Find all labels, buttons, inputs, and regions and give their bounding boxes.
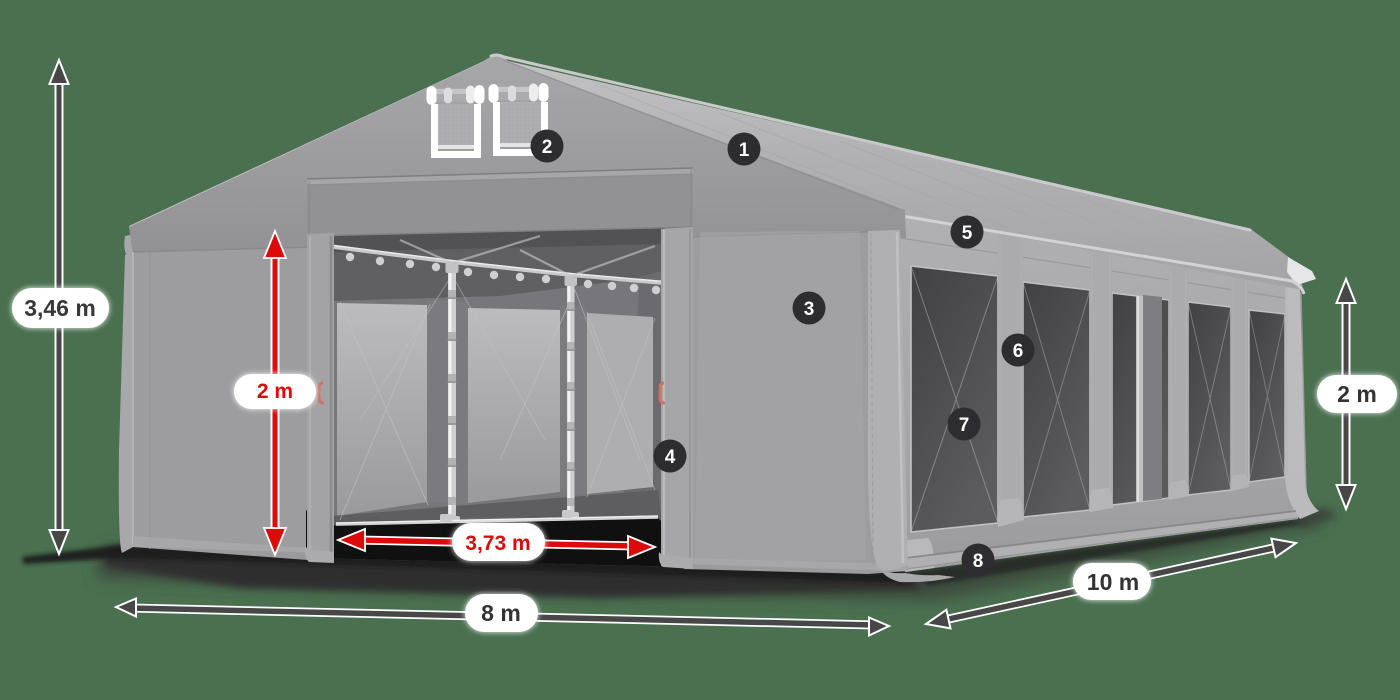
svg-text:4: 4 bbox=[665, 447, 676, 468]
svg-text:3,73 m: 3,73 m bbox=[465, 532, 530, 555]
svg-text:7: 7 bbox=[959, 415, 970, 436]
svg-text:3: 3 bbox=[804, 299, 815, 320]
svg-text:6: 6 bbox=[1013, 341, 1024, 362]
svg-text:3,46 m: 3,46 m bbox=[24, 295, 96, 321]
svg-text:8: 8 bbox=[973, 551, 984, 572]
svg-text:2 m: 2 m bbox=[1337, 381, 1377, 407]
svg-text:2: 2 bbox=[542, 137, 553, 158]
svg-text:8 m: 8 m bbox=[481, 600, 521, 626]
svg-text:2 m: 2 m bbox=[257, 380, 293, 403]
svg-text:5: 5 bbox=[962, 223, 973, 244]
svg-text:1: 1 bbox=[739, 140, 750, 161]
svg-text:10 m: 10 m bbox=[1087, 569, 1139, 595]
